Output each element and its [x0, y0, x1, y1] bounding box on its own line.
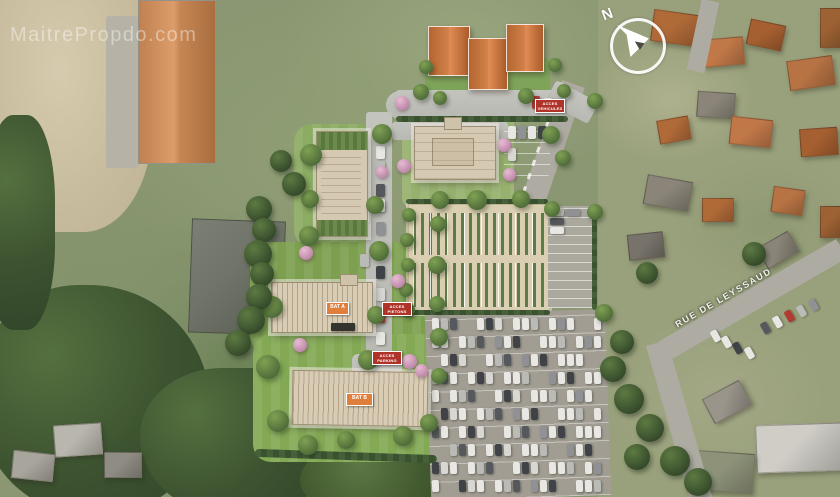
sign-line: VEHICULES: [536, 106, 564, 111]
parking-lot-car: [459, 444, 466, 456]
parking-lot-car: [513, 372, 520, 384]
parking-lot-car: [477, 372, 484, 384]
parking-lot-car: [567, 462, 574, 474]
parking-lot-car: [594, 462, 601, 474]
tree: [372, 124, 392, 144]
parking-lot-car: [594, 426, 601, 438]
parking-lot-car: [585, 336, 592, 348]
parking-lot-car: [585, 444, 592, 456]
car: [360, 254, 369, 267]
parking-lot-car: [495, 390, 502, 402]
parking-lot-car: [531, 354, 538, 366]
parking-lot-car: [567, 318, 574, 330]
compass-north-label: N: [599, 5, 615, 25]
car: [376, 332, 385, 345]
parking-lot-car: [513, 318, 520, 330]
parking-lot-car: [567, 354, 574, 366]
building-roof-access: [340, 274, 358, 286]
parking-lot-car: [567, 372, 574, 384]
parking-lot-car: [531, 480, 538, 492]
building-green-roof: [316, 131, 368, 237]
car: [566, 209, 580, 216]
tree: [660, 446, 690, 476]
parking-lot-car: [531, 318, 538, 330]
parking-lot-car: [486, 354, 493, 366]
tree: [252, 218, 276, 242]
tree: [624, 444, 650, 470]
car: [376, 146, 385, 159]
flowering-tree: [397, 159, 411, 173]
flowering-tree: [293, 338, 307, 352]
parking-lot-car: [585, 426, 592, 438]
sign-line: PIETONS: [383, 309, 411, 314]
car: [376, 184, 385, 197]
tree: [587, 204, 603, 220]
parking-lot-car: [477, 336, 484, 348]
parking-lot-car: [513, 480, 520, 492]
parking-lot-car: [585, 372, 592, 384]
flowering-tree: [497, 138, 511, 152]
flowering-tree: [415, 364, 428, 377]
building-label-bat-b: BAT B: [346, 393, 373, 406]
parking-lot-car: [504, 354, 511, 366]
parking-lot-car: [540, 480, 547, 492]
house-roof: [702, 198, 734, 222]
house-roof: [729, 116, 774, 148]
tree: [548, 58, 562, 72]
parking-lot-car: [549, 480, 556, 492]
tree: [614, 384, 644, 414]
house-roof: [770, 186, 805, 216]
parking-lot-car: [576, 408, 583, 420]
hedge: [396, 116, 568, 122]
parking-lot-car: [477, 318, 484, 330]
entrance-marker: [331, 323, 355, 331]
house-roof: [104, 452, 142, 478]
sign-acces-vehicules: ACCES VEHICULES: [535, 99, 565, 113]
parking-lot-car: [504, 390, 511, 402]
parking-lot-car: [558, 318, 565, 330]
terraced-house-roof: [506, 24, 544, 72]
parking-lot-car: [477, 462, 484, 474]
tree: [250, 262, 274, 286]
parking-lot-car: [459, 336, 466, 348]
parking-lot-car: [558, 408, 565, 420]
parking-lot-car: [576, 354, 583, 366]
hedge: [592, 206, 597, 310]
parking-lot-car: [477, 426, 484, 438]
parking-lot-car: [486, 318, 493, 330]
parking-lot-car: [495, 480, 502, 492]
parking-lot-car: [450, 372, 457, 384]
parking-lot-car: [468, 480, 475, 492]
parking-lot-car: [531, 390, 538, 402]
sign-acces-parking: ACCES PARKING: [372, 351, 402, 365]
tree: [300, 144, 322, 166]
tree: [299, 226, 319, 246]
tree: [742, 242, 766, 266]
parking-lot-car: [513, 408, 520, 420]
house-roof: [820, 8, 840, 48]
parking-lot-car: [567, 444, 574, 456]
tree: [420, 414, 438, 432]
roof-panel: [321, 154, 361, 214]
parking-lot-car: [576, 336, 583, 348]
parking-lot-car: [486, 462, 493, 474]
parking-lot-car: [441, 408, 448, 420]
parking-lot-car: [432, 462, 439, 474]
parking-lot-car: [522, 408, 529, 420]
parking-lot-car: [558, 354, 565, 366]
car: [376, 266, 385, 279]
parking-lot-car: [486, 444, 493, 456]
parking-lot-car: [522, 354, 529, 366]
parking-lot-car: [468, 372, 475, 384]
parking-lot-car: [522, 318, 529, 330]
house-roof: [53, 422, 103, 457]
parking-lot-car: [495, 408, 502, 420]
car: [550, 227, 564, 234]
tree: [401, 258, 415, 272]
green-roof-band: [317, 132, 367, 150]
parking-lot-car: [441, 426, 448, 438]
flowering-tree: [503, 168, 516, 181]
parking-lot-car: [540, 354, 547, 366]
parking-lot-car: [558, 372, 565, 384]
house-roof: [627, 231, 666, 261]
tree: [400, 233, 414, 247]
parking-lot-car: [495, 318, 502, 330]
parking-lot-car: [540, 336, 547, 348]
tree: [430, 216, 446, 232]
parking-lot-car: [513, 336, 520, 348]
tree: [413, 84, 429, 100]
building-roof-access: [444, 117, 462, 130]
car: [518, 126, 526, 139]
parking-lot-car: [477, 480, 484, 492]
parking-lot-car: [450, 408, 457, 420]
parking-lot-car: [549, 390, 556, 402]
flowering-tree: [376, 166, 388, 178]
tree: [636, 262, 658, 284]
parking-lot-car: [594, 336, 601, 348]
tree: [429, 296, 445, 312]
parking-lot-car: [558, 336, 565, 348]
parking-lot-car: [558, 462, 565, 474]
aerial-masterplan-image: ACCES VEHICULES ACCES PIETONS ACCES PARK…: [0, 0, 840, 497]
parking-lot-car: [468, 444, 475, 456]
flowering-tree: [395, 96, 409, 110]
tree: [282, 172, 306, 196]
parking-lot-car: [432, 390, 439, 402]
woodland: [0, 115, 55, 330]
tree: [557, 84, 571, 98]
house-roof: [786, 55, 836, 91]
parking-lot-car: [576, 444, 583, 456]
tree: [684, 468, 712, 496]
tree: [225, 330, 251, 356]
parking-lot-car: [459, 390, 466, 402]
parking-lot-car: [459, 426, 466, 438]
tree: [270, 150, 292, 172]
parking-lot-car: [495, 354, 502, 366]
flowering-tree: [299, 246, 313, 260]
car: [508, 126, 516, 139]
parking-lot-car: [567, 408, 574, 420]
parking-lot-car: [531, 444, 538, 456]
terraced-house-roof: [468, 38, 508, 90]
tree: [600, 356, 626, 382]
parking-lot-car: [468, 390, 475, 402]
parking-lot-car: [513, 462, 520, 474]
car: [376, 288, 385, 301]
parking-lot-car: [441, 462, 448, 474]
parking-lot-car: [549, 336, 556, 348]
parking-lot-car: [522, 462, 529, 474]
parking-lot-car: [504, 372, 511, 384]
parking-lot-car: [468, 336, 475, 348]
tree: [337, 431, 355, 449]
tree: [366, 196, 384, 214]
parking-lot-car: [495, 336, 502, 348]
tree: [419, 60, 433, 74]
tree: [595, 304, 613, 322]
tree: [402, 208, 416, 222]
parking-lot-car: [549, 318, 556, 330]
parking-lot-car: [531, 408, 538, 420]
watermark: MaitrePropdo.com: [10, 24, 197, 47]
parking-lot-car: [486, 408, 493, 420]
car: [508, 148, 516, 161]
tree: [636, 414, 664, 442]
tree: [393, 426, 413, 446]
tree: [301, 190, 319, 208]
sign-acces-pietons: ACCES PIETONS: [382, 302, 412, 316]
parking-lot-car: [495, 444, 502, 456]
parking-lot-car: [468, 426, 475, 438]
parking-lot-car: [504, 336, 511, 348]
parking-lot-car: [576, 480, 583, 492]
parking-lot-car: [504, 444, 511, 456]
parking-lot-car: [450, 462, 457, 474]
parking-lot-car: [567, 390, 574, 402]
parking-lot-car: [558, 426, 565, 438]
parking-lot-car: [576, 426, 583, 438]
parking-lot-car: [585, 462, 592, 474]
tree: [369, 241, 389, 261]
building-bat-a: [271, 282, 373, 333]
parking-lot-car: [540, 426, 547, 438]
parking-lot-car: [450, 390, 457, 402]
hedge: [406, 310, 550, 315]
house-roof: [799, 127, 839, 158]
tree: [428, 256, 446, 274]
parking-lot-car: [513, 426, 520, 438]
building-label-bat-a: BAT A: [326, 302, 349, 315]
parking-lot-car: [549, 462, 556, 474]
tree: [267, 410, 289, 432]
parking-lot-car: [486, 372, 493, 384]
parking-lot-car: [477, 408, 484, 420]
parking-lot-car: [585, 390, 592, 402]
tree: [256, 355, 280, 379]
parking-lot-car: [459, 354, 466, 366]
house-roof: [11, 450, 56, 482]
parking-lot-car: [594, 480, 601, 492]
tree: [431, 191, 449, 209]
parking-lot-car: [450, 354, 457, 366]
parking-lot-car: [531, 462, 538, 474]
tree: [555, 150, 571, 166]
car: [528, 126, 536, 139]
building-courtyard: [432, 138, 474, 166]
tree: [610, 330, 634, 354]
parking-lot-car: [504, 426, 511, 438]
house-roof: [696, 91, 736, 120]
sign-line: PARKING: [373, 358, 401, 363]
parking-lot-car: [585, 480, 592, 492]
parking-lot-car: [540, 444, 547, 456]
car: [550, 218, 564, 225]
flowering-tree: [391, 274, 405, 288]
parking-lot-car: [432, 480, 439, 492]
parking-lot-car: [522, 372, 529, 384]
parking-lot-car: [459, 480, 466, 492]
parking-lot-car: [594, 408, 601, 420]
parking-lot-car: [522, 444, 529, 456]
parking-lot-car: [504, 480, 511, 492]
compass: N: [600, 6, 672, 78]
tree: [512, 190, 530, 208]
tree: [544, 201, 560, 217]
terraced-house-roof: [428, 26, 470, 76]
parking-lot-car: [468, 462, 475, 474]
parking-lot-car: [522, 426, 529, 438]
house-roof: [820, 206, 840, 238]
tree: [587, 93, 603, 109]
tree: [298, 435, 318, 455]
parking-lot-car: [513, 390, 520, 402]
tree: [542, 126, 560, 144]
parking-lot-car: [549, 426, 556, 438]
green-roof-band: [317, 220, 367, 236]
house-roof: [755, 423, 840, 474]
parking-lot-car: [459, 408, 466, 420]
parking-lot-car: [549, 372, 556, 384]
car: [376, 222, 385, 235]
parking-lot-car: [450, 318, 457, 330]
tree: [433, 91, 447, 105]
parking-lot-car: [450, 444, 457, 456]
parking-lot-car: [576, 390, 583, 402]
tree: [518, 88, 534, 104]
tree: [430, 328, 448, 346]
parking-lot-car: [540, 390, 547, 402]
parking-lot-car: [441, 354, 448, 366]
tree: [431, 368, 447, 384]
tree: [467, 190, 487, 210]
